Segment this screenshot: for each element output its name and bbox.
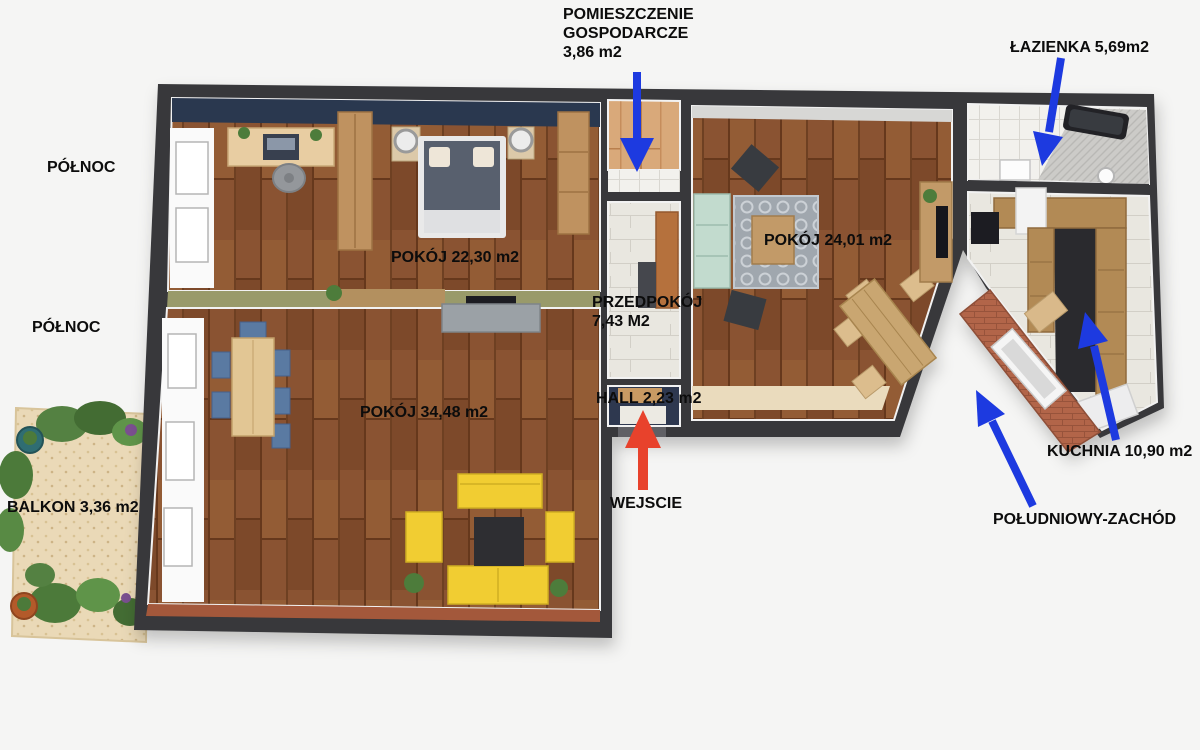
label-north-top: PÓŁNOC [47,158,115,177]
lamp-left [395,130,417,152]
toilet [1098,168,1114,184]
hallway-przedpokoj [608,202,680,378]
label-room-bedroom: POKÓJ 22,30 m2 [391,248,519,267]
sofa-teal [694,194,730,288]
kitchen-counter-top [994,198,1126,228]
living-window-1 [168,334,196,388]
label-bathroom: ŁAZIENKA 5,69m2 [1010,38,1149,57]
label-hall: HALL 2,23 m2 [596,389,702,408]
kitchen-column [1016,188,1046,234]
wardrobe [338,112,372,250]
label-utility-line1: POMIESZCZENIE [563,5,694,24]
bed [418,136,506,238]
desk [228,127,334,166]
label-southwest: POŁUDNIOWY-ZACHÓD [993,510,1176,529]
lamp-right [510,129,532,151]
label-utility-line2: GOSPODARCZE [563,24,694,43]
bedroom-navy-wall [172,98,600,127]
building [134,84,1164,638]
bathroom-sink [1000,160,1030,180]
label-balcony: BALKON 3,36 m2 [7,498,139,517]
arrow-southwest [976,390,1033,506]
bedroom-cabinet [558,112,589,234]
label-utility-room: POMIESZCZENIE GOSPODARCZE 3,86 m2 [563,5,694,62]
bedroom-window-2 [176,208,208,262]
living-window-2 [166,422,194,480]
floor-plan-svg [0,0,1200,750]
room-living-right [692,106,952,420]
bedroom-window-1 [176,142,208,194]
label-hallway-line2: 7,43 M2 [592,312,702,331]
label-hallway-line1: PRZEDPOKÓJ [592,293,702,312]
sideboard-tv [920,182,952,282]
label-north-bottom: PÓŁNOC [32,318,100,337]
kitchen-island [442,304,540,332]
office-chair [273,164,305,192]
floor-plan-page: POMIESZCZENIE GOSPODARCZE 3,86 m2 ŁAZIEN… [0,0,1200,750]
room-living-left [146,304,600,622]
label-room-living-left: POKÓJ 34,48 m2 [360,403,488,422]
room-bedroom [168,98,600,291]
label-kitchen: KUCHNIA 10,90 m2 [1047,442,1192,461]
label-hallway: PRZEDPOKÓJ 7,43 M2 [592,293,702,331]
label-entrance: WEJSCIE [610,494,682,513]
living-window-3 [164,508,192,566]
label-utility-line3: 3,86 m2 [563,43,694,62]
bathroom [968,104,1149,196]
balcony-area [0,401,148,642]
stove [971,212,999,244]
label-room-living-right: POKÓJ 24,01 m2 [764,231,892,250]
